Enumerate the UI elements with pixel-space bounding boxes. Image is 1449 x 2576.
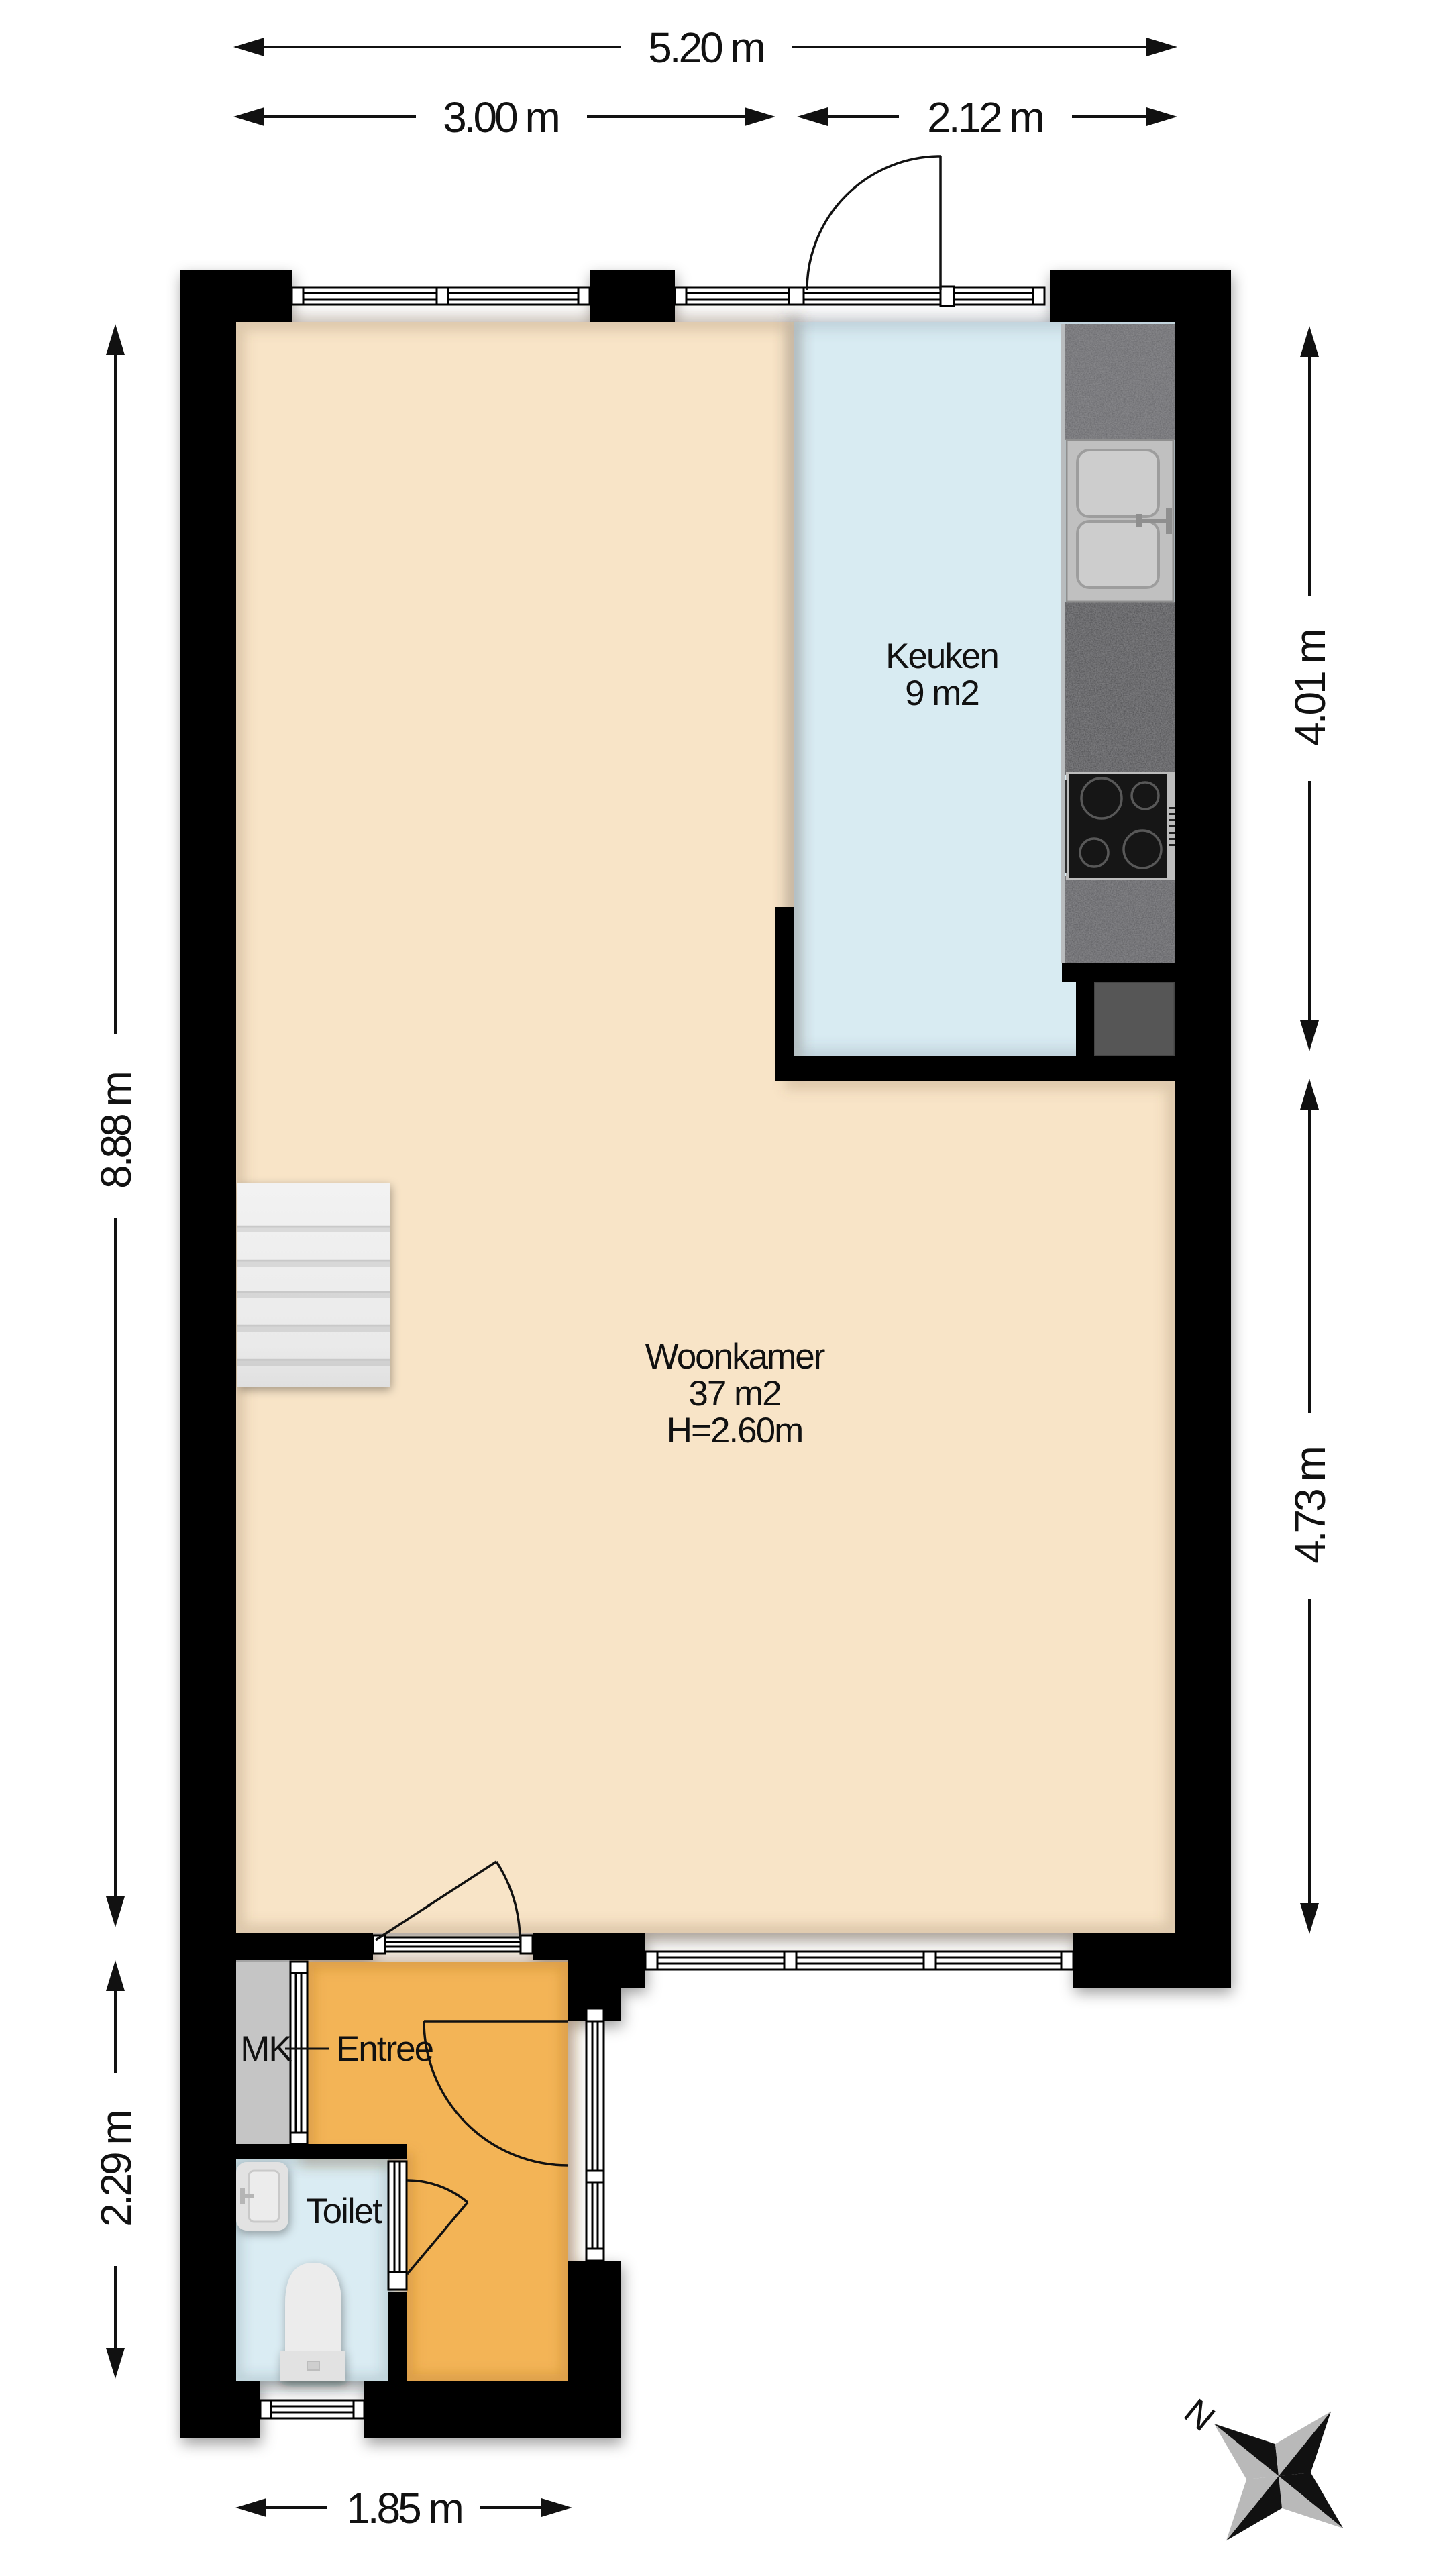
svg-text:N: N bbox=[1177, 2391, 1222, 2438]
svg-text:5.20 m: 5.20 m bbox=[648, 23, 763, 72]
svg-text:9 m2: 9 m2 bbox=[905, 674, 979, 713]
svg-text:2.29 m: 2.29 m bbox=[92, 2111, 140, 2226]
svg-text:37 m2: 37 m2 bbox=[688, 1374, 780, 1413]
svg-text:4.01 m: 4.01 m bbox=[1286, 630, 1334, 745]
svg-text:Entree: Entree bbox=[336, 2029, 433, 2069]
svg-text:Keuken: Keuken bbox=[885, 637, 998, 676]
svg-text:2.12 m: 2.12 m bbox=[927, 93, 1042, 142]
svg-text:3.00 m: 3.00 m bbox=[443, 93, 558, 142]
svg-text:Woonkamer: Woonkamer bbox=[645, 1337, 825, 1377]
svg-text:8.88 m: 8.88 m bbox=[92, 1073, 140, 1188]
svg-text:MK: MK bbox=[240, 2029, 292, 2069]
svg-text:Toilet: Toilet bbox=[306, 2192, 382, 2231]
svg-text:1.85 m: 1.85 m bbox=[346, 2484, 462, 2532]
svg-text:H=2.60m: H=2.60m bbox=[667, 1411, 803, 1450]
svg-text:4.73 m: 4.73 m bbox=[1286, 1448, 1334, 1563]
